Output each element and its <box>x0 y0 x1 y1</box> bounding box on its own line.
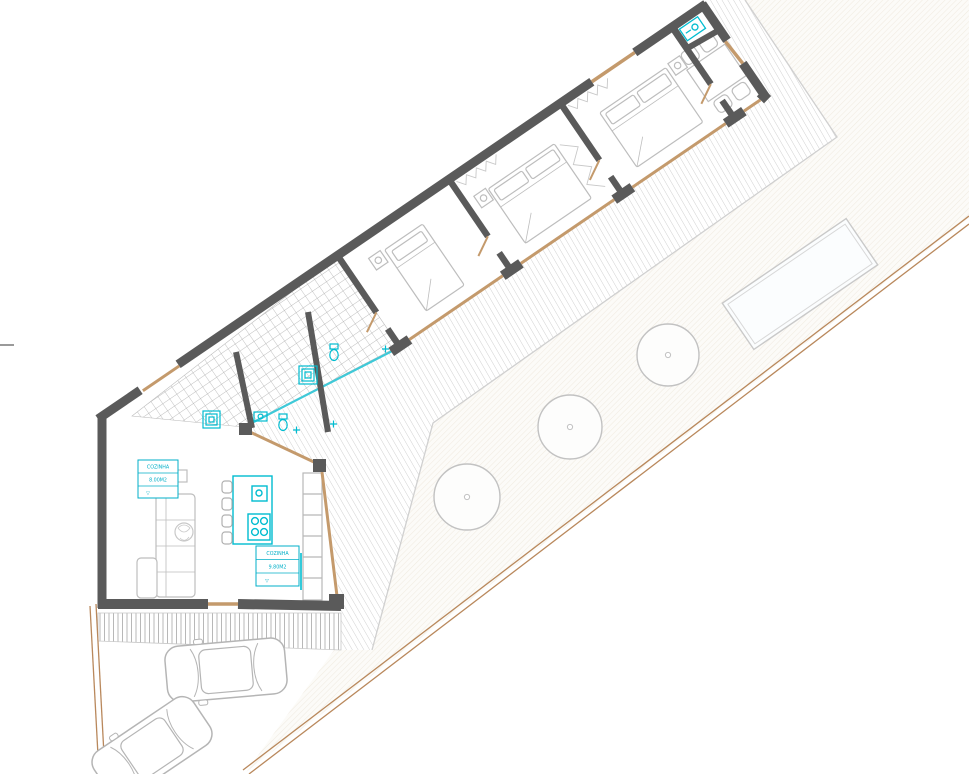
chaise <box>137 558 157 598</box>
floor-plan-page: COZINHA 8.00M2 ▽ COZINHA 9.80M2 ▽ <box>0 0 969 774</box>
floor-plan: COZINHA 8.00M2 ▽ COZINHA 9.80M2 ▽ <box>0 0 969 774</box>
level-marker: ▽ <box>265 579 269 584</box>
room-name: COZINHA <box>147 465 170 471</box>
tree <box>637 324 699 386</box>
wall-stub <box>313 459 326 472</box>
room-label-kitchen: COZINHA 9.80M2 ▽ <box>256 546 299 586</box>
tree <box>434 464 500 530</box>
room-area: 9.80M2 <box>269 565 287 571</box>
room-label-living: COZINHA 8.00M2 ▽ <box>138 460 178 498</box>
level-marker: ▽ <box>146 492 150 497</box>
room-area: 8.00M2 <box>149 478 167 484</box>
room-name: COZINHA <box>266 551 289 557</box>
shelf-unit <box>303 473 322 600</box>
wall-stub <box>329 594 344 609</box>
cars <box>84 632 289 774</box>
tree <box>538 395 602 459</box>
wall-stub <box>239 423 252 435</box>
